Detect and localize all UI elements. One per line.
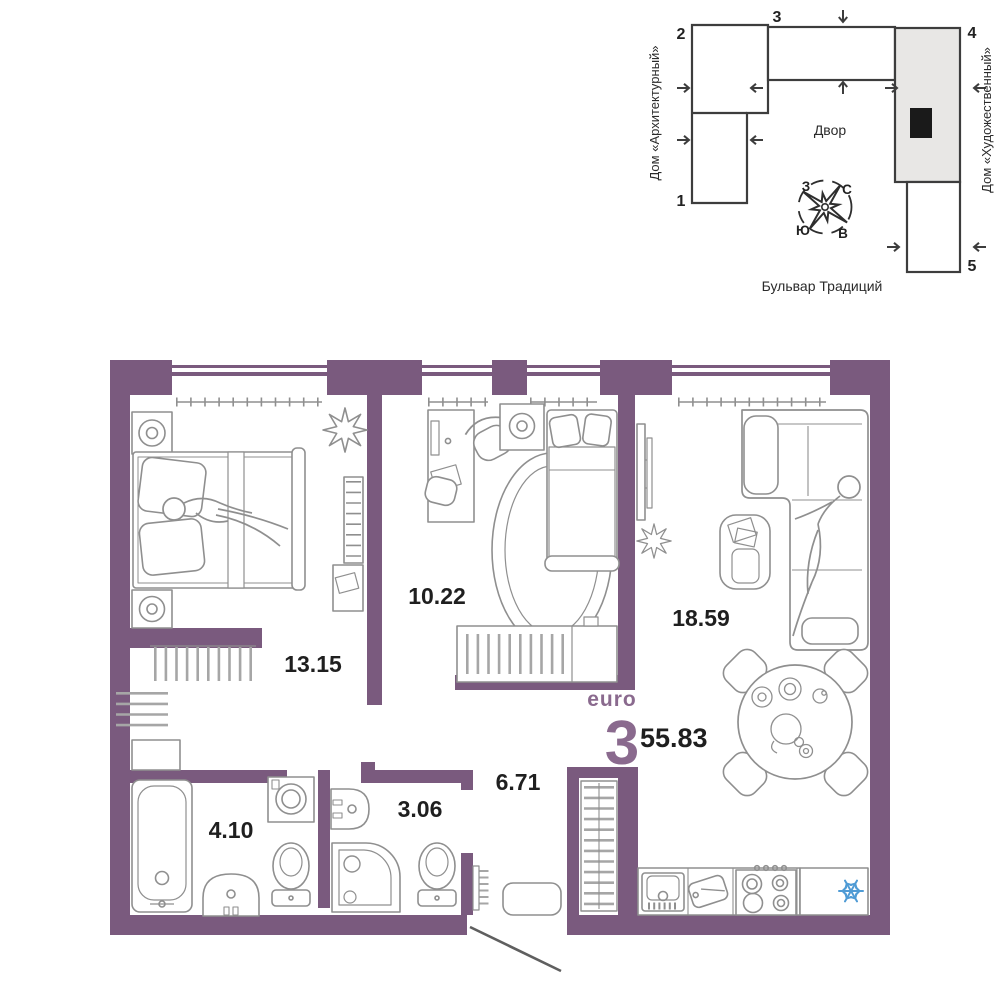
stove: [736, 866, 796, 915]
doormat: [503, 883, 561, 915]
dining-set: [719, 645, 872, 800]
toilet: [418, 843, 456, 906]
wall-toilet-right-lower: [461, 853, 473, 915]
hall-closet: [581, 781, 617, 911]
apartment-location-marker: [910, 108, 932, 138]
shelf-unit: [333, 477, 363, 611]
compass-north: С: [842, 182, 852, 197]
building-number-4: 4: [968, 25, 977, 42]
bathroom-fixtures: [132, 777, 314, 916]
arrow-left-icon: [974, 243, 986, 251]
room-area-hallway: 6.71: [496, 769, 541, 795]
compass-west: З: [802, 179, 810, 194]
wall-right: [870, 360, 890, 935]
street-label: Бульвар Традиций: [762, 278, 883, 294]
window-glazing-line: [130, 372, 870, 376]
unit-summary: euro 3 55.83: [587, 688, 707, 778]
entrance-door-swing: [470, 927, 561, 971]
building-number-3: 3: [773, 9, 782, 26]
window-glazing-line: [130, 365, 870, 368]
shower: [332, 843, 400, 912]
wall-hall-closet-right: [618, 767, 638, 935]
plant-icon: [637, 524, 671, 558]
arrow-left-icon: [751, 136, 763, 144]
wall-bathroom-divider: [318, 770, 330, 908]
arrow-down-icon: [839, 10, 847, 22]
tv-panel: [637, 424, 652, 520]
hallway-items: [473, 781, 617, 915]
plan-canvas: З С Ю В 2 3 4 1 5 Двор Бульвар Традиций …: [0, 0, 1000, 1000]
unit-rooms-count: 3: [605, 709, 639, 778]
nightstand-lamp: [500, 404, 544, 450]
building-number-5: 5: [968, 258, 977, 275]
arrow-right-icon: [677, 136, 689, 144]
door-threshold: [473, 866, 479, 910]
room-area-bedroom: 13.15: [284, 651, 342, 677]
bedroom2-furniture: [423, 404, 619, 682]
room-area-living: 18.59: [672, 605, 730, 631]
bedroom-furniture: [132, 408, 367, 628]
compass-rose: З С Ю В: [796, 179, 852, 241]
plant-icon: [323, 408, 367, 452]
building-number-1: 1: [677, 193, 686, 210]
compass-center: [822, 204, 828, 210]
building-3-outline: [768, 27, 895, 80]
wall-sink: [331, 789, 369, 829]
kitchen-counter: [638, 866, 868, 915]
single-bed: [545, 410, 619, 571]
shoe-cabinet: [132, 740, 180, 770]
double-bed: [133, 448, 305, 590]
wall-bottom-left: [110, 915, 467, 935]
wall-bottom-right: [567, 915, 890, 935]
arrow-right-icon: [887, 243, 899, 251]
house-left-label: Дом «Архитектурный»: [647, 45, 662, 180]
floor-plan-page: З С Ю В 2 3 4 1 5 Двор Бульвар Традиций …: [0, 0, 1000, 1000]
apartment-floor-plan: 13.15 10.22 18.59 6.71 4.10 3.06 euro 3 …: [110, 360, 890, 971]
building-khudozhestvenny-outline: [895, 28, 960, 182]
building-number-2: 2: [677, 26, 686, 43]
wall-bedroom2-living: [618, 395, 635, 690]
nightstand-lamp: [132, 412, 172, 454]
living-kitchen-furniture: [637, 410, 872, 915]
courtyard-label: Двор: [814, 122, 847, 138]
unit-total-area: 55.83: [640, 723, 708, 753]
washing-machine: [268, 777, 314, 822]
sink: [203, 874, 259, 916]
house-right-label: Дом «Художественный»: [979, 47, 994, 193]
wall-hall-closet-left: [567, 767, 579, 915]
wall-toilet-cap: [461, 770, 473, 790]
arrow-right-icon: [677, 84, 689, 92]
desk: [428, 410, 474, 522]
dining-table: [738, 665, 852, 779]
room-area-toilet: 3.06: [398, 796, 443, 822]
toilet: [272, 843, 310, 906]
wall-toilet-notch: [361, 762, 375, 770]
wall-bedroom-closet: [110, 628, 262, 648]
coffee-table: [720, 515, 770, 589]
nightstand-lamp: [132, 590, 172, 628]
site-plan: З С Ю В 2 3 4 1 5 Двор Бульвар Традиций …: [647, 9, 994, 294]
unit-type-label: euro: [587, 688, 637, 711]
closet-rails: [132, 646, 256, 770]
building-5-outline: [907, 182, 960, 272]
compass-east: В: [838, 226, 848, 241]
wall-toilet-top: [361, 770, 473, 783]
wardrobe: [457, 617, 617, 682]
room-area-bathroom: 4.10: [209, 817, 254, 843]
compass-south: Ю: [796, 223, 810, 238]
arrow-up-icon: [839, 82, 847, 94]
room-area-bedroom2: 10.22: [408, 583, 466, 609]
fridge: [800, 868, 868, 915]
wall-bedroom-right: [367, 395, 382, 705]
bathtub: [132, 780, 192, 912]
